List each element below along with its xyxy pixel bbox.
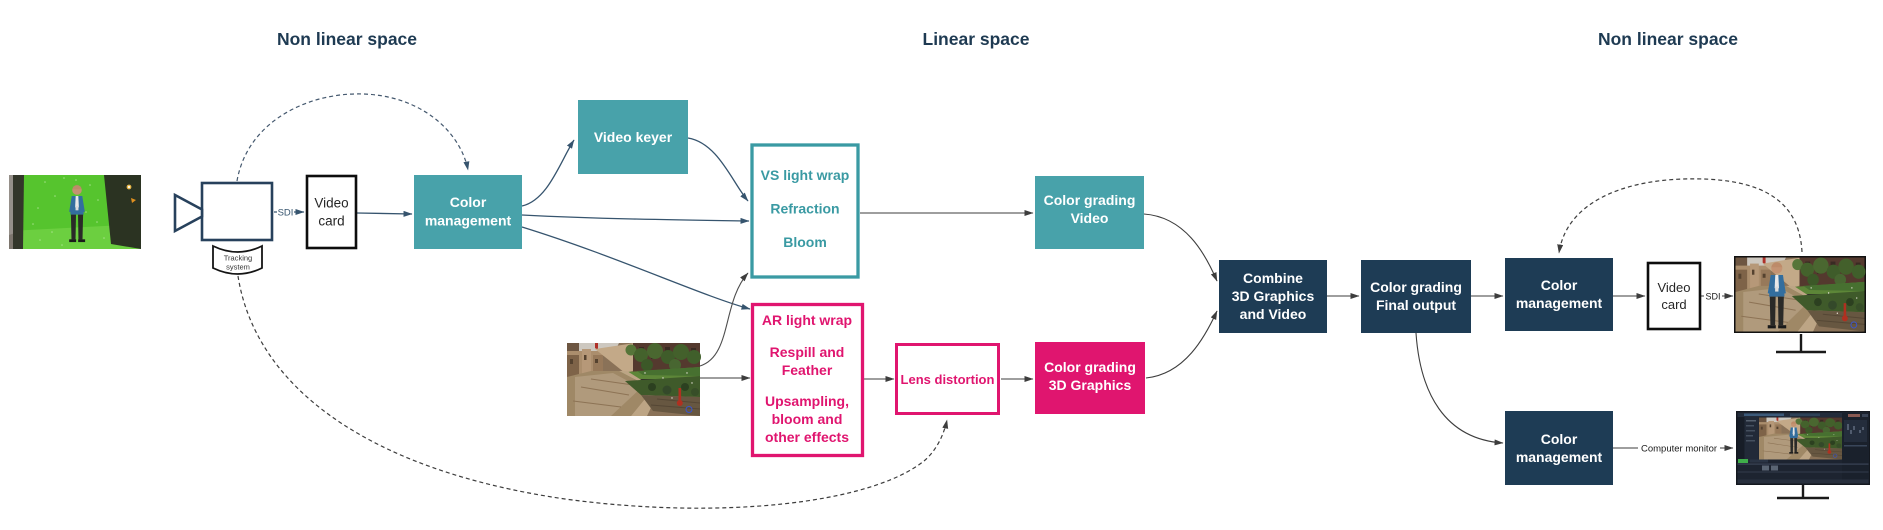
svg-text:Color grading: Color grading — [1044, 359, 1136, 375]
svg-text:3D Graphics: 3D Graphics — [1049, 377, 1132, 393]
svg-text:Color: Color — [450, 194, 487, 210]
svg-text:Video: Video — [314, 196, 348, 211]
svg-text:Color: Color — [1541, 277, 1578, 293]
svg-text:Color: Color — [1541, 431, 1578, 447]
svg-text:Color grading: Color grading — [1044, 192, 1136, 208]
svg-text:management: management — [425, 213, 512, 229]
svg-text:Video keyer: Video keyer — [594, 129, 673, 145]
svg-text:Feather: Feather — [782, 362, 833, 378]
svg-text:card: card — [318, 214, 344, 229]
svg-text:card: card — [1661, 297, 1686, 312]
svg-text:Video: Video — [1657, 280, 1690, 295]
svg-text:and Video: and Video — [1240, 306, 1307, 322]
svg-text:Lens distortion: Lens distortion — [901, 372, 995, 387]
svg-text:bloom and: bloom and — [772, 411, 843, 427]
svg-text:Combine: Combine — [1243, 270, 1303, 286]
svg-text:SDI: SDI — [278, 208, 294, 219]
svg-text:system: system — [226, 263, 250, 272]
svg-text:Non linear space: Non linear space — [277, 29, 417, 49]
svg-text:Computer monitor: Computer monitor — [1641, 444, 1717, 455]
svg-text:Linear space: Linear space — [923, 29, 1030, 49]
svg-text:Respill and: Respill and — [770, 344, 845, 360]
svg-text:VS light wrap: VS light wrap — [761, 167, 850, 183]
svg-text:Upsampling,: Upsampling, — [765, 393, 849, 409]
svg-text:management: management — [1516, 449, 1603, 465]
svg-text:Tracking: Tracking — [224, 254, 252, 263]
svg-text:Bloom: Bloom — [783, 234, 827, 250]
svg-text:management: management — [1516, 295, 1603, 311]
svg-text:Non linear space: Non linear space — [1598, 29, 1738, 49]
svg-text:SDI: SDI — [1705, 292, 1720, 302]
svg-text:Video: Video — [1071, 210, 1109, 226]
svg-text:Color grading: Color grading — [1370, 279, 1462, 295]
svg-text:Final output: Final output — [1376, 297, 1456, 313]
svg-text:AR light wrap: AR light wrap — [762, 312, 852, 328]
svg-text:Refraction: Refraction — [770, 201, 839, 217]
svg-text:other effects: other effects — [765, 429, 849, 445]
svg-text:3D Graphics: 3D Graphics — [1232, 288, 1315, 304]
